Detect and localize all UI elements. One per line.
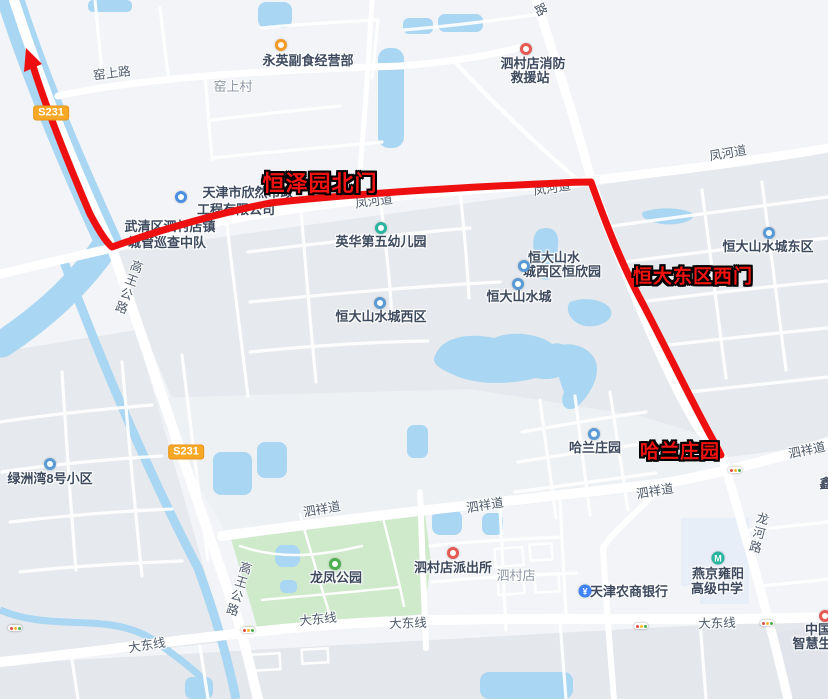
residence-icon[interactable] [518,260,530,272]
residence-icon[interactable] [588,428,600,440]
poi-label[interactable]: 工程有限公司 [197,203,275,217]
hospital-icon[interactable] [819,610,828,622]
poi-label[interactable]: 泗村店消防 [500,57,565,71]
police-icon[interactable] [447,547,459,559]
area-label: 窑上村 [213,80,252,94]
poi-label[interactable]: 恒大山水城西区 [335,310,426,324]
area-label: 泗村店 [496,569,535,583]
traffic-light-icon [760,620,774,626]
kindergarten-icon[interactable] [375,222,387,234]
park-icon[interactable] [329,558,341,570]
poi-label[interactable]: 恒大山水城东区 [722,240,813,254]
poi-label[interactable]: 英华第五幼儿园 [335,235,426,249]
poi-label[interactable]: 鑫 [819,477,828,491]
bank-icon[interactable]: ¥ [579,585,592,598]
poi-label[interactable]: 中国 [805,623,828,637]
traffic-light-icon [728,467,742,473]
road-label: 大东线 [698,617,736,631]
traffic-light-icon [634,623,648,629]
poi-label[interactable]: 救援站 [510,71,549,85]
poi-label[interactable]: 城西区恒欣园 [523,265,601,279]
map-canvas[interactable]: 窑上路窑上村永英副食经营部泗村店消防救援站路凤河道凤河道凤河道天津市欣然市政工程… [0,0,828,699]
poi-label[interactable]: 永英副食经营部 [262,54,353,68]
poi-label[interactable]: 哈兰庄园 [569,441,621,455]
poi-label[interactable]: 武清区泗村店镇 [124,220,215,234]
residence-icon[interactable] [374,297,386,309]
residence-icon[interactable] [44,458,56,470]
poi-label[interactable]: 绿洲湾8号小区 [7,472,92,486]
school-icon[interactable]: M [712,552,725,565]
poi-label[interactable]: 城管巡查中队 [128,236,206,250]
fire-station-icon[interactable] [520,43,532,55]
traffic-light-icon [8,625,22,631]
road-badge-s231: S231 [33,106,69,121]
poi-label[interactable]: 燕京雍阳 [692,567,744,581]
poi-label[interactable]: 恒大山水 [528,251,580,265]
company-icon[interactable] [175,191,187,203]
poi-label[interactable]: 恒大山水城 [486,290,551,304]
poi-label[interactable]: 天津农商银行 [590,585,668,599]
residence-icon[interactable] [512,278,524,290]
poi-label[interactable]: 智慧生 [792,637,828,651]
road-label: 大东线 [389,617,427,631]
route-label: 恒大东区西门 [633,262,753,289]
route-label: 哈兰庄园 [640,437,720,464]
residence-icon[interactable] [763,227,775,239]
traffic-light-icon [241,627,255,633]
poi-label[interactable]: 高级中学 [691,582,743,596]
route-label: 恒泽园北门 [262,166,377,198]
shop-icon[interactable] [275,39,287,51]
road-badge-s231: S231 [168,445,204,460]
poi-label[interactable]: 龙凤公园 [310,571,362,585]
poi-label[interactable]: 泗村店派出所 [414,561,492,575]
